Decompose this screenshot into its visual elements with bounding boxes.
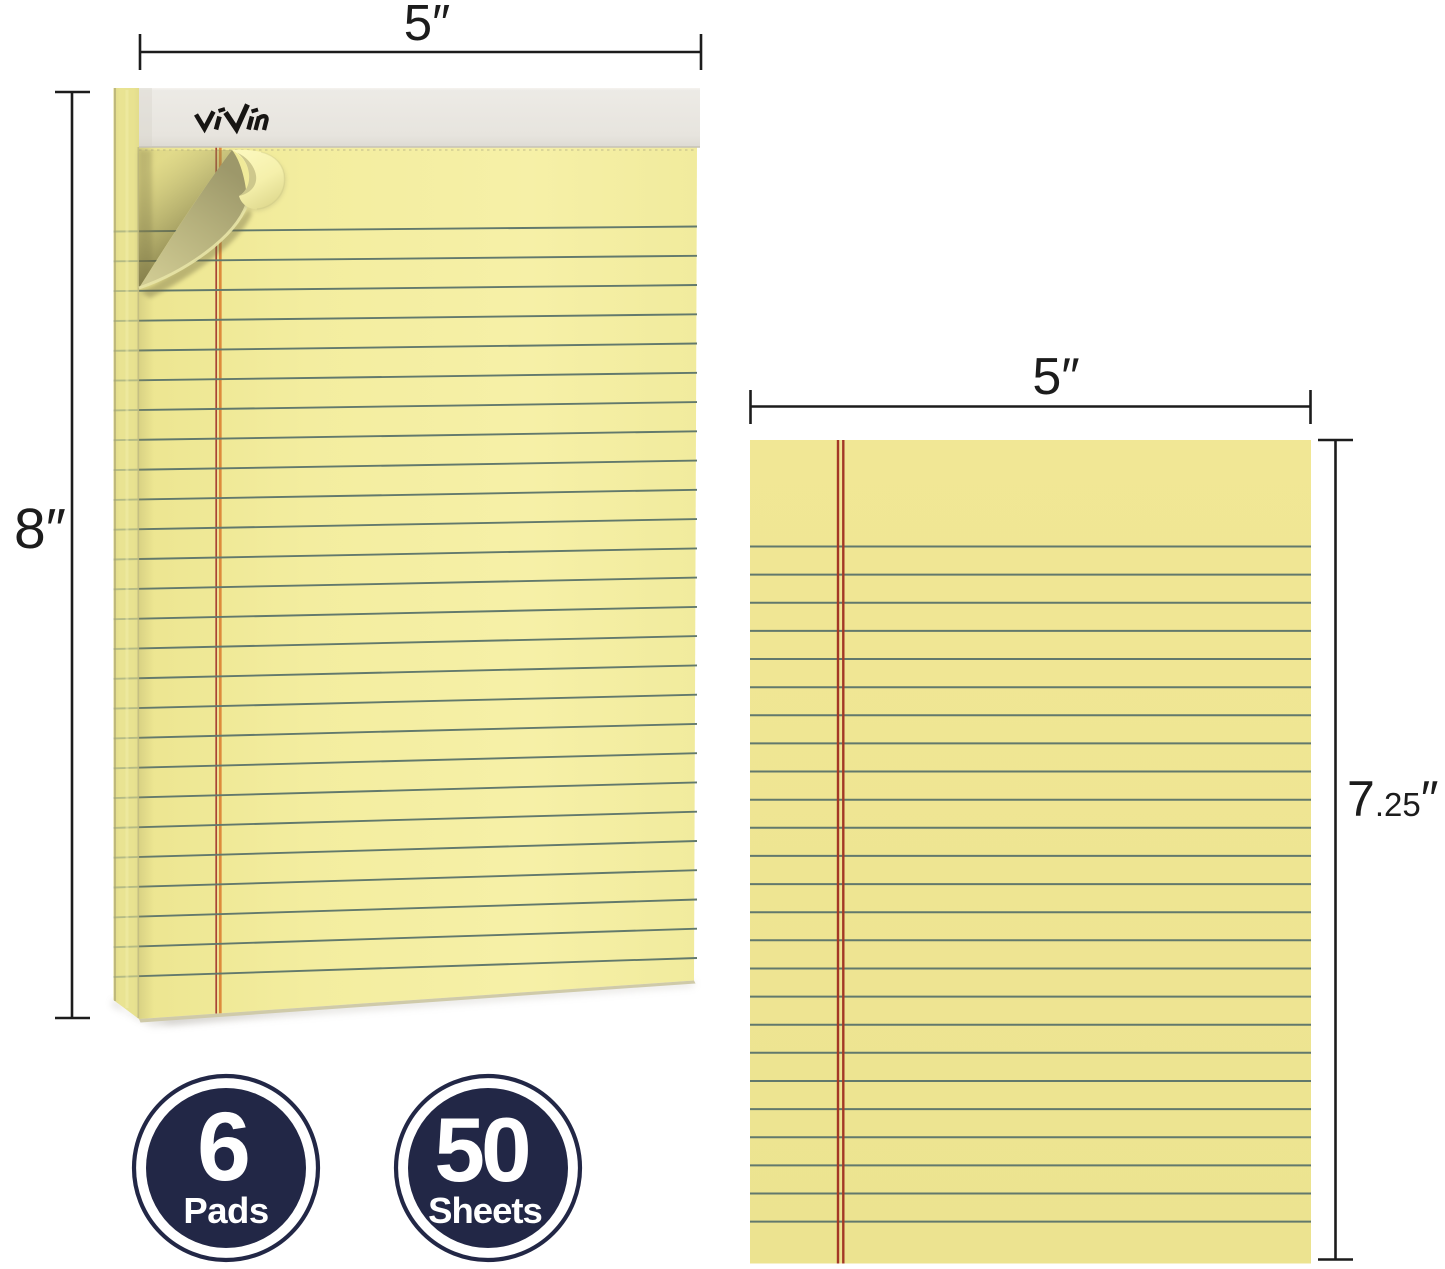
- svg-text:6: 6: [197, 1092, 251, 1201]
- svg-text:5″: 5″: [404, 0, 450, 51]
- svg-text:Sheets: Sheets: [428, 1190, 542, 1231]
- svg-text:5″: 5″: [1032, 348, 1079, 406]
- svg-text:8″: 8″: [14, 497, 66, 561]
- svg-text:50: 50: [434, 1100, 528, 1201]
- svg-text:Pads: Pads: [183, 1190, 268, 1231]
